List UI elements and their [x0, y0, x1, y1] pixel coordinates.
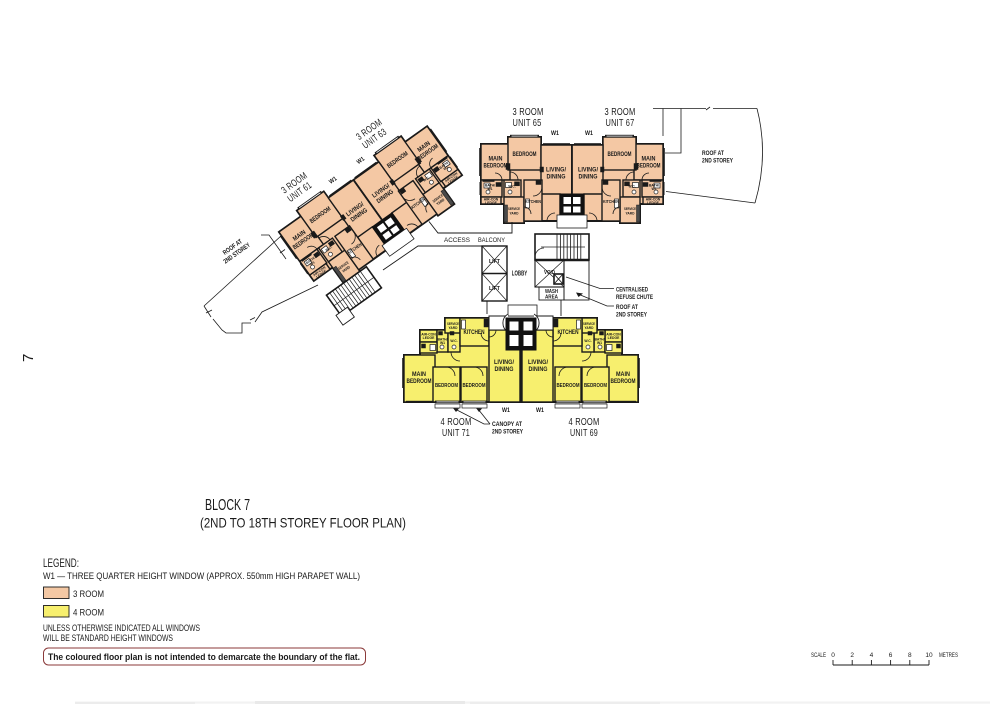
svg-text:3 ROOM: 3 ROOM [73, 589, 104, 600]
svg-text:4: 4 [870, 652, 874, 659]
svg-text:6: 6 [889, 652, 893, 659]
svg-text:7: 7 [20, 354, 37, 362]
svg-text:0: 0 [831, 652, 835, 659]
svg-text:METRES: METRES [939, 652, 958, 659]
svg-text:2ND STOREY: 2ND STOREY [702, 158, 733, 165]
svg-text:8: 8 [908, 652, 912, 659]
svg-text:VOID: VOID [544, 270, 555, 276]
svg-text:REFUSE CHUTE: REFUSE CHUTE [616, 294, 653, 301]
svg-text:2: 2 [850, 652, 854, 659]
svg-text:10: 10 [925, 652, 933, 659]
svg-text:LOBBY: LOBBY [512, 271, 528, 278]
svg-text:LEGEND:: LEGEND: [43, 556, 79, 570]
svg-text:BALCONY: BALCONY [478, 237, 506, 244]
svg-text:ROOF AT: ROOF AT [616, 304, 638, 311]
svg-text:BLOCK 7: BLOCK 7 [205, 497, 250, 514]
svg-text:CENTRALISED: CENTRALISED [616, 287, 648, 294]
svg-text:LIFT: LIFT [489, 259, 500, 265]
svg-text:ACCESS: ACCESS [444, 237, 471, 244]
svg-text:2ND STOREY: 2ND STOREY [616, 312, 647, 319]
svg-text:AREA: AREA [545, 295, 558, 301]
svg-text:UNLESS OTHERWISE INDICATED ALL: UNLESS OTHERWISE INDICATED ALL WINDOWS [43, 623, 200, 633]
svg-text:ROOF AT: ROOF AT [702, 150, 724, 157]
svg-text:UNIT 65: UNIT 65 [513, 117, 542, 129]
svg-text:CANOPY AT: CANOPY AT [492, 421, 522, 428]
svg-text:W1 — THREE QUARTER HEIGHT WI: W1 — THREE QUARTER HEIGHT WINDOW (APPROX… [43, 571, 360, 581]
svg-text:UNIT 71: UNIT 71 [442, 427, 470, 439]
svg-text:4 ROOM: 4 ROOM [73, 608, 104, 619]
svg-text:(2ND TO 18TH STOREY FLOOR PLAN: (2ND TO 18TH STOREY FLOOR PLAN) [200, 515, 406, 531]
svg-text:UNIT 69: UNIT 69 [570, 427, 598, 439]
svg-text:LIFT: LIFT [489, 286, 500, 292]
svg-text:The coloured floor plan is not: The coloured floor plan is not intended … [48, 651, 360, 662]
svg-text:UNIT 67: UNIT 67 [606, 117, 635, 129]
svg-text:2ND STOREY: 2ND STOREY [492, 429, 523, 436]
svg-text:SCALE: SCALE [811, 652, 826, 659]
svg-text:WILL BE STANDARD HEIGHT WINDOW: WILL BE STANDARD HEIGHT WINDOWS [43, 633, 173, 643]
